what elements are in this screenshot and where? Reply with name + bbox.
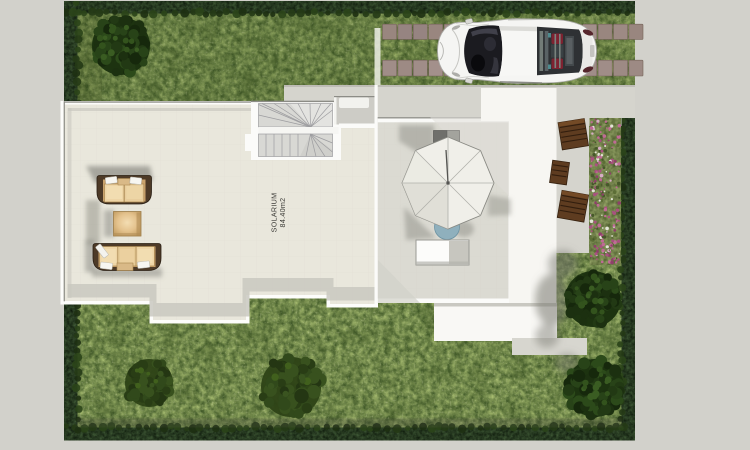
svg-text:84.40m2: 84.40m2 xyxy=(279,198,287,228)
svg-text:SOLARIUM: SOLARIUM xyxy=(270,193,278,233)
